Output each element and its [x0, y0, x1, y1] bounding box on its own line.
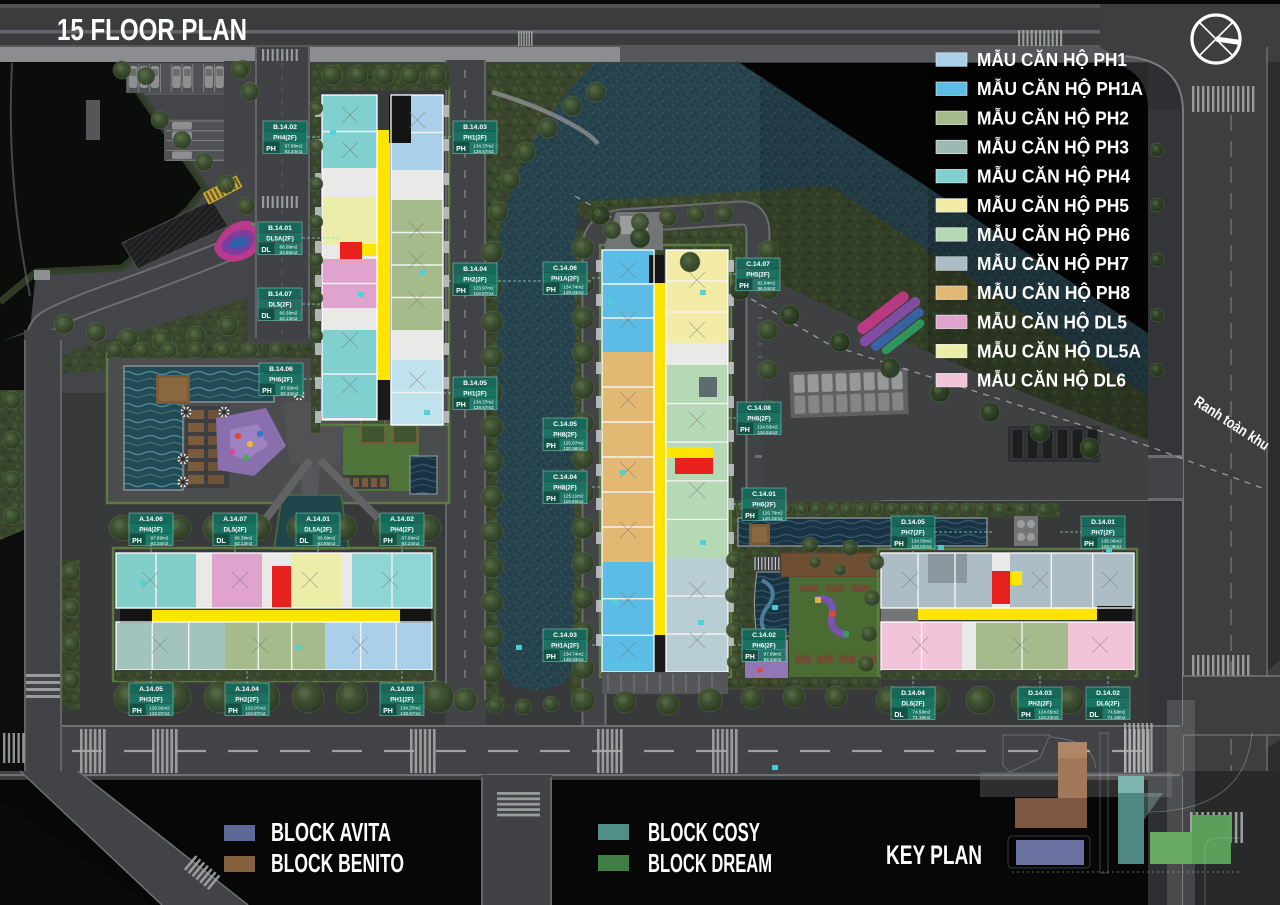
svg-text:D.14.05: D.14.05 [901, 519, 925, 526]
svg-text:PH: PH [546, 443, 556, 450]
svg-text:118.07m2: 118.07m2 [473, 291, 494, 296]
svg-text:125.67m2: 125.67m2 [563, 441, 584, 446]
svg-text:PH7(2F): PH7(2F) [1091, 530, 1114, 537]
svg-text:134.37m2: 134.37m2 [400, 706, 421, 711]
svg-text:D.14.03: D.14.03 [1028, 690, 1052, 697]
svg-text:PH: PH [456, 146, 466, 153]
svg-text:A.14.06: A.14.06 [139, 516, 163, 523]
svg-text:PH: PH [132, 538, 142, 545]
svg-text:123.97m2: 123.97m2 [473, 286, 494, 291]
svg-text:125.11m2: 125.11m2 [563, 494, 584, 499]
svg-text:129.06m2: 129.06m2 [1101, 544, 1122, 549]
svg-text:MẪU CĂN HỘ PH6: MẪU CĂN HỘ PH6 [977, 224, 1130, 245]
svg-text:DL6(2F): DL6(2F) [901, 701, 924, 708]
svg-text:C.14.02: C.14.02 [752, 632, 776, 639]
svg-text:MẪU CĂN HỘ PH7: MẪU CĂN HỘ PH7 [977, 253, 1129, 274]
svg-text:DL5A(2F): DL5A(2F) [266, 236, 294, 243]
svg-text:PH: PH [739, 283, 749, 290]
svg-text:MẪU CĂN HỘ PH1A: MẪU CĂN HỘ PH1A [977, 78, 1143, 99]
svg-text:128.67m2: 128.67m2 [473, 149, 494, 154]
svg-text:PH4(2F): PH4(2F) [390, 527, 413, 534]
svg-text:PH4(2F): PH4(2F) [273, 135, 296, 142]
svg-text:97.69m2: 97.69m2 [285, 144, 303, 149]
svg-text:B.14.03: B.14.03 [463, 124, 487, 131]
svg-text:118.84m2: 118.84m2 [757, 430, 778, 435]
svg-text:134.74m2: 134.74m2 [563, 285, 584, 290]
svg-text:PH: PH [266, 146, 276, 153]
svg-text:PH2(2F): PH2(2F) [1028, 701, 1051, 708]
svg-text:MẪU CĂN HỘ DL5: MẪU CĂN HỘ DL5 [977, 311, 1127, 332]
svg-text:119.22m2: 119.22m2 [1038, 715, 1059, 720]
svg-text:BLOCK COSY: BLOCK COSY [648, 817, 760, 847]
svg-text:PH: PH [383, 538, 393, 545]
svg-text:120.24m2: 120.24m2 [762, 516, 783, 521]
svg-text:C.14.07: C.14.07 [746, 261, 770, 268]
svg-text:63.55m2: 63.55m2 [280, 250, 298, 255]
svg-text:129.03m2: 129.03m2 [563, 657, 584, 662]
svg-text:15 FLOOR PLAN: 15 FLOOR PLAN [57, 12, 247, 47]
svg-text:PH3(2F): PH3(2F) [139, 697, 162, 704]
svg-text:97.69m2: 97.69m2 [151, 536, 169, 541]
svg-text:124.65m2: 124.65m2 [1038, 710, 1059, 715]
svg-text:134.50m2: 134.50m2 [911, 539, 932, 544]
svg-text:C.14.04: C.14.04 [553, 474, 577, 481]
svg-text:A.14.03: A.14.03 [390, 686, 414, 693]
svg-text:DL: DL [1089, 712, 1099, 719]
svg-text:PH1A(2F): PH1A(2F) [551, 276, 579, 283]
svg-text:129.92m2: 129.92m2 [149, 706, 170, 711]
svg-text:134.37m2: 134.37m2 [473, 144, 494, 149]
svg-text:DL: DL [894, 712, 904, 719]
svg-text:120.58m2: 120.58m2 [563, 446, 584, 451]
svg-text:PH1(2F): PH1(2F) [463, 135, 486, 142]
svg-text:134.74m2: 134.74m2 [563, 652, 584, 657]
svg-text:PH: PH [262, 388, 272, 395]
svg-text:PH2(2F): PH2(2F) [235, 697, 258, 704]
svg-text:PH1(2F): PH1(2F) [390, 697, 413, 704]
svg-text:86.04m2: 86.04m2 [758, 286, 776, 291]
svg-text:PH8(2F): PH8(2F) [553, 432, 576, 439]
svg-text:119.85m2: 119.85m2 [563, 499, 584, 504]
svg-text:B.14.02: B.14.02 [273, 124, 297, 131]
svg-text:PH: PH [546, 287, 556, 294]
svg-text:PH: PH [1084, 541, 1094, 548]
svg-text:DL: DL [216, 538, 226, 545]
svg-text:MẪU CĂN HỘ PH5: MẪU CĂN HỘ PH5 [977, 195, 1129, 216]
svg-text:DL5A(2F): DL5A(2F) [304, 527, 332, 534]
svg-text:BLOCK DREAM: BLOCK DREAM [648, 848, 772, 878]
svg-text:92.04m2: 92.04m2 [758, 281, 776, 286]
svg-text:B.14.05: B.14.05 [463, 380, 487, 387]
svg-text:MẪU CĂN HỘ PH2: MẪU CĂN HỘ PH2 [977, 107, 1129, 128]
svg-text:B.14.01: B.14.01 [268, 225, 292, 232]
svg-text:MẪU CĂN HỘ DL6: MẪU CĂN HỘ DL6 [977, 370, 1126, 391]
svg-text:PH1A(2F): PH1A(2F) [551, 643, 579, 650]
svg-text:MẪU CĂN HỘ PH1: MẪU CĂN HỘ PH1 [977, 49, 1127, 70]
svg-text:PH: PH [1021, 712, 1031, 719]
svg-text:PH: PH [228, 708, 238, 715]
svg-text:D.14.01: D.14.01 [1091, 519, 1115, 526]
svg-text:DL: DL [261, 313, 271, 320]
svg-text:PH5(2F): PH5(2F) [746, 272, 769, 279]
svg-text:123.97m2: 123.97m2 [149, 711, 170, 716]
svg-text:118.97m2: 118.97m2 [245, 711, 266, 716]
svg-text:KEY PLAN: KEY PLAN [886, 840, 982, 870]
svg-text:PH2(2F): PH2(2F) [463, 277, 486, 284]
svg-text:74.58m2: 74.58m2 [1108, 710, 1126, 715]
svg-text:DL6(2F): DL6(2F) [1096, 701, 1119, 708]
svg-text:PH: PH [456, 402, 466, 409]
svg-text:B.14.04: B.14.04 [463, 266, 487, 273]
svg-text:A.14.05: A.14.05 [139, 686, 163, 693]
svg-text:PH6(2F): PH6(2F) [752, 502, 775, 509]
svg-text:PH: PH [546, 496, 556, 503]
svg-text:MẪU CĂN HỘ DL5A: MẪU CĂN HỘ DL5A [977, 341, 1141, 362]
svg-text:93.34m2: 93.34m2 [281, 391, 299, 396]
svg-text:A.14.01: A.14.01 [306, 516, 330, 523]
svg-text:DL5(2F): DL5(2F) [223, 527, 246, 534]
svg-text:A.14.07: A.14.07 [223, 516, 247, 523]
svg-text:125.79m2: 125.79m2 [762, 511, 783, 516]
svg-text:B.14.06: B.14.06 [269, 366, 293, 373]
svg-text:128.62m2: 128.62m2 [911, 544, 932, 549]
svg-text:PH: PH [740, 427, 750, 434]
svg-text:74.58m2: 74.58m2 [913, 710, 931, 715]
svg-text:PH: PH [894, 541, 904, 548]
svg-text:PH1(2F): PH1(2F) [463, 391, 486, 398]
svg-text:C.14.03: C.14.03 [553, 632, 577, 639]
svg-text:MẪU CĂN HỘ PH4: MẪU CĂN HỘ PH4 [977, 166, 1131, 187]
svg-text:PH6(2F): PH6(2F) [747, 416, 770, 423]
svg-text:C.14.01: C.14.01 [752, 491, 776, 498]
svg-text:DL: DL [261, 247, 271, 254]
svg-text:71.18m2: 71.18m2 [913, 715, 931, 720]
svg-text:93.34m2: 93.34m2 [285, 149, 303, 154]
svg-text:PH: PH [745, 513, 755, 520]
svg-text:C.14.06: C.14.06 [553, 265, 577, 272]
svg-text:66.39m2: 66.39m2 [235, 536, 253, 541]
svg-text:134.37m2: 134.37m2 [473, 400, 494, 405]
svg-text:128.67m2: 128.67m2 [400, 711, 421, 716]
svg-text:A.14.02: A.14.02 [390, 516, 414, 523]
svg-text:PH: PH [383, 708, 393, 715]
svg-text:63.13m2: 63.13m2 [235, 541, 253, 546]
svg-text:PH7(2F): PH7(2F) [901, 530, 924, 537]
svg-text:135.06m2: 135.06m2 [1101, 539, 1122, 544]
svg-text:128.67m2: 128.67m2 [473, 405, 494, 410]
svg-text:97.69m2: 97.69m2 [281, 386, 299, 391]
svg-text:63.13m2: 63.13m2 [280, 316, 298, 321]
svg-text:66.09m2: 66.09m2 [280, 245, 298, 250]
svg-text:DL: DL [299, 538, 309, 545]
svg-text:93.34m2: 93.34m2 [151, 541, 169, 546]
svg-text:BLOCK AVITA: BLOCK AVITA [271, 817, 391, 847]
svg-text:124.63m2: 124.63m2 [757, 425, 778, 430]
svg-text:PH: PH [546, 654, 556, 661]
svg-text:93.34m2: 93.34m2 [402, 541, 420, 546]
svg-text:PH8(2F): PH8(2F) [553, 485, 576, 492]
svg-text:66.09m2: 66.09m2 [318, 536, 336, 541]
svg-text:93.34m2: 93.34m2 [764, 657, 782, 662]
svg-text:D.14.02: D.14.02 [1096, 690, 1120, 697]
svg-text:C.14.05: C.14.05 [553, 421, 577, 428]
svg-text:A.14.04: A.14.04 [235, 686, 259, 693]
svg-text:PH6(2F): PH6(2F) [269, 377, 292, 384]
svg-text:PH: PH [456, 288, 466, 295]
svg-text:D.14.04: D.14.04 [901, 690, 925, 697]
svg-text:MẪU CĂN HỘ PH8: MẪU CĂN HỘ PH8 [977, 282, 1130, 303]
svg-text:63.55m2: 63.55m2 [318, 541, 336, 546]
svg-text:BLOCK BENITO: BLOCK BENITO [271, 848, 404, 878]
svg-text:97.69m2: 97.69m2 [402, 536, 420, 541]
svg-text:B.14.07: B.14.07 [268, 291, 292, 298]
svg-text:71.18m2: 71.18m2 [1108, 715, 1126, 720]
svg-text:DL5(2F): DL5(2F) [268, 302, 291, 309]
svg-text:97.69m2: 97.69m2 [764, 652, 782, 657]
svg-text:66.39m2: 66.39m2 [280, 311, 298, 316]
svg-text:PH: PH [132, 708, 142, 715]
svg-text:PH6(2F): PH6(2F) [752, 643, 775, 650]
svg-text:MẪU CĂN HỘ PH3: MẪU CĂN HỘ PH3 [977, 136, 1129, 157]
svg-text:PH4(2F): PH4(2F) [139, 527, 162, 534]
svg-text:129.03m2: 129.03m2 [563, 290, 584, 295]
svg-text:PH: PH [745, 654, 755, 661]
svg-text:C.14.08: C.14.08 [747, 405, 771, 412]
svg-text:123.97m2: 123.97m2 [245, 706, 266, 711]
